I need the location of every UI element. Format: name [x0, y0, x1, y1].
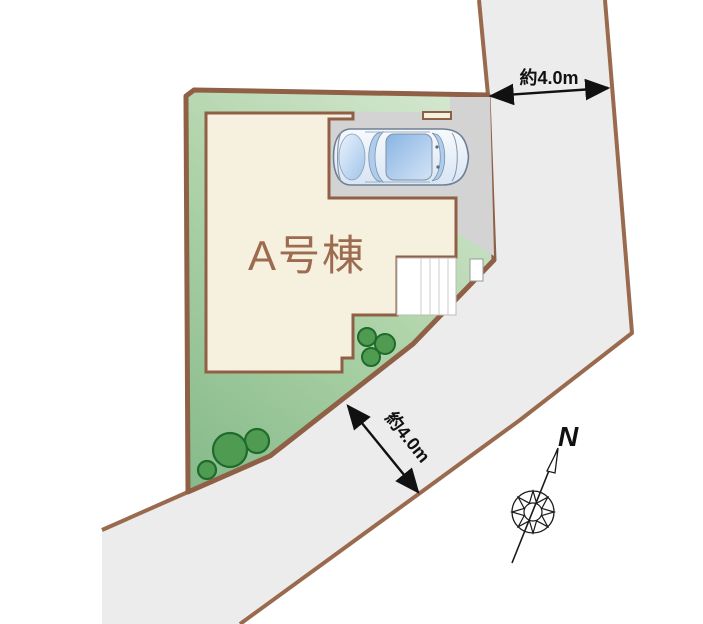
- tree-shape: [245, 429, 269, 453]
- north-label: N: [558, 421, 579, 452]
- car-mirror-dot: [436, 165, 439, 168]
- tree-shape: [213, 433, 247, 467]
- shrub-shape: [358, 328, 376, 346]
- entrance-steps: [397, 258, 456, 315]
- site-plan-page: A号棟 約4.0m 約4.0m N: [0, 0, 703, 624]
- car-top-view-icon: [334, 129, 469, 185]
- car-roof: [386, 134, 432, 180]
- site-plan-svg: A号棟 約4.0m 約4.0m N: [0, 0, 703, 624]
- car-front-glass: [339, 134, 365, 180]
- wall-stub: [423, 112, 451, 119]
- tree-shape: [198, 461, 216, 479]
- entrance-pad: [470, 259, 483, 281]
- car-mirror-dot: [435, 145, 438, 148]
- building-label: A号棟: [248, 232, 366, 279]
- dimension-label: 約4.0m: [519, 67, 578, 88]
- shrub-shape: [362, 348, 380, 366]
